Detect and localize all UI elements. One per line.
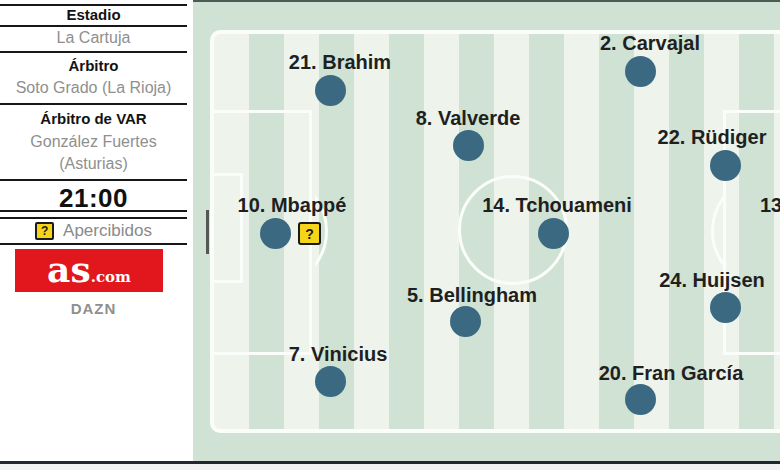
lineup-graphic: Estadio La Cartuja Árbitro Soto Grado (L…: [0, 0, 780, 470]
warning-question-icon: ?: [35, 222, 54, 240]
as-logo-text: as: [47, 249, 91, 289]
stadium-heading: Estadio: [0, 6, 187, 23]
match-info-sidebar: Estadio La Cartuja Árbitro Soto Grado (L…: [0, 0, 193, 470]
apercibidos-legend: ? Apercibidos: [0, 218, 187, 244]
stadium-value: La Cartuja: [0, 29, 187, 47]
as-logo-suffix: .com: [91, 268, 131, 286]
divider: [0, 25, 187, 27]
as-com-logo: as .com: [15, 249, 163, 292]
var-referee-region: (Asturias): [0, 155, 187, 173]
penalty-arc-right-circle: [711, 174, 723, 288]
bottom-margin: [0, 464, 780, 470]
pitch-top-edge: [193, 0, 780, 2]
pitch: [193, 0, 780, 461]
divider: [0, 51, 187, 53]
penalty-arc-left: [315, 165, 355, 305]
referee-value: Soto Grado (La Rioja): [0, 79, 187, 97]
var-referee-name: González Fuertes: [0, 133, 187, 151]
apercibidos-label: Apercibidos: [63, 221, 152, 241]
goal-left: [206, 210, 209, 254]
goal-area-left: [210, 173, 243, 283]
penalty-box-right: [723, 110, 780, 355]
divider: [0, 210, 187, 212]
divider: [0, 243, 187, 245]
divider: [0, 103, 187, 105]
referee-heading: Árbitro: [0, 57, 187, 74]
penalty-arc-right: [683, 165, 723, 305]
var-referee-heading: Árbitro de VAR: [0, 110, 187, 127]
center-circle: [458, 175, 568, 285]
divider: [0, 179, 187, 181]
penalty-arc-left-circle: [315, 174, 328, 288]
broadcaster-label: DAZN: [0, 300, 187, 317]
